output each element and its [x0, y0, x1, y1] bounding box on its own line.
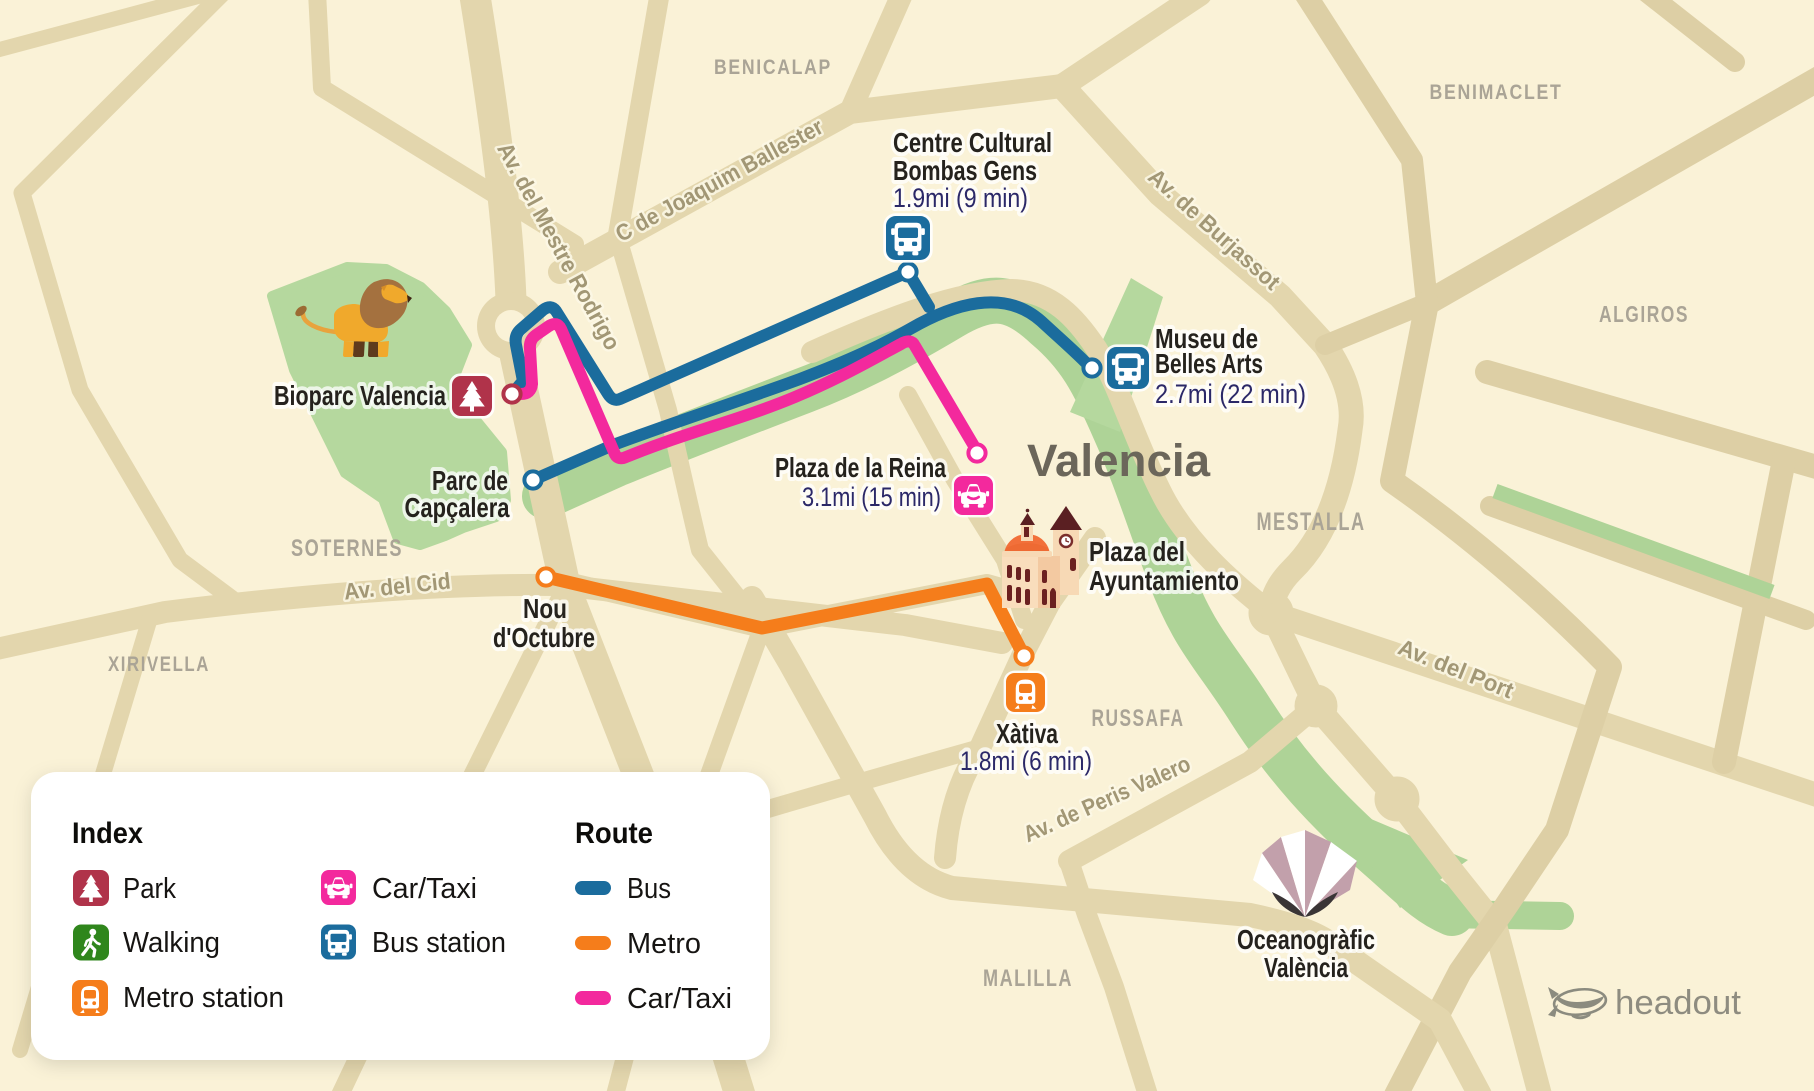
svg-text:Bus: Bus — [627, 873, 671, 905]
svg-text:Ayuntamiento: Ayuntamiento — [1089, 565, 1239, 596]
svg-text:SOTERNES: SOTERNES — [291, 535, 403, 562]
svg-text:Centre Cultural: Centre Cultural — [893, 127, 1052, 158]
svg-text:Plaza de la Reina: Plaza de la Reina — [775, 452, 946, 483]
svg-text:RUSSAFA: RUSSAFA — [1092, 705, 1185, 732]
svg-text:Car/Taxi: Car/Taxi — [627, 983, 732, 1015]
svg-text:Walking: Walking — [123, 927, 220, 959]
svg-text:Capçalera: Capçalera — [405, 492, 510, 523]
svg-text:MALILLA: MALILLA — [983, 965, 1073, 992]
svg-text:BENICALAP: BENICALAP — [714, 56, 832, 79]
svg-text:Bus station: Bus station — [372, 927, 506, 959]
svg-text:ALGIROS: ALGIROS — [1599, 301, 1689, 327]
svg-text:Metro: Metro — [627, 928, 701, 960]
svg-text:1.9mi (9 min): 1.9mi (9 min) — [893, 183, 1028, 213]
svg-text:Index: Index — [72, 817, 143, 850]
svg-text:1.8mi (6 min): 1.8mi (6 min) — [960, 746, 1092, 776]
svg-text:Belles Arts: Belles Arts — [1155, 348, 1263, 379]
svg-text:d'Octubre: d'Octubre — [493, 622, 595, 653]
svg-text:Park: Park — [123, 873, 176, 905]
svg-text:València: València — [1264, 952, 1348, 983]
svg-text:Metro station: Metro station — [123, 982, 284, 1014]
svg-text:Valencia: Valencia — [1027, 435, 1211, 486]
svg-text:Nou: Nou — [523, 593, 567, 624]
svg-text:Route: Route — [575, 817, 653, 850]
svg-text:MESTALLA: MESTALLA — [1257, 508, 1366, 536]
svg-text:3.1mi (15 min): 3.1mi (15 min) — [802, 482, 941, 512]
svg-text:BENIMACLET: BENIMACLET — [1430, 81, 1563, 104]
svg-text:Car/Taxi: Car/Taxi — [372, 873, 477, 905]
svg-text:Bioparc Valencia: Bioparc Valencia — [274, 380, 446, 411]
svg-text:Oceanogràfic: Oceanogràfic — [1237, 924, 1375, 955]
svg-text:Bombas Gens: Bombas Gens — [893, 155, 1037, 186]
svg-text:Plaza del: Plaza del — [1089, 536, 1185, 567]
svg-text:XIRIVELLA: XIRIVELLA — [108, 653, 210, 676]
svg-text:headout: headout — [1615, 984, 1742, 1022]
svg-text:2.7mi (22 min): 2.7mi (22 min) — [1155, 379, 1306, 409]
svg-text:Xàtiva: Xàtiva — [996, 718, 1058, 749]
